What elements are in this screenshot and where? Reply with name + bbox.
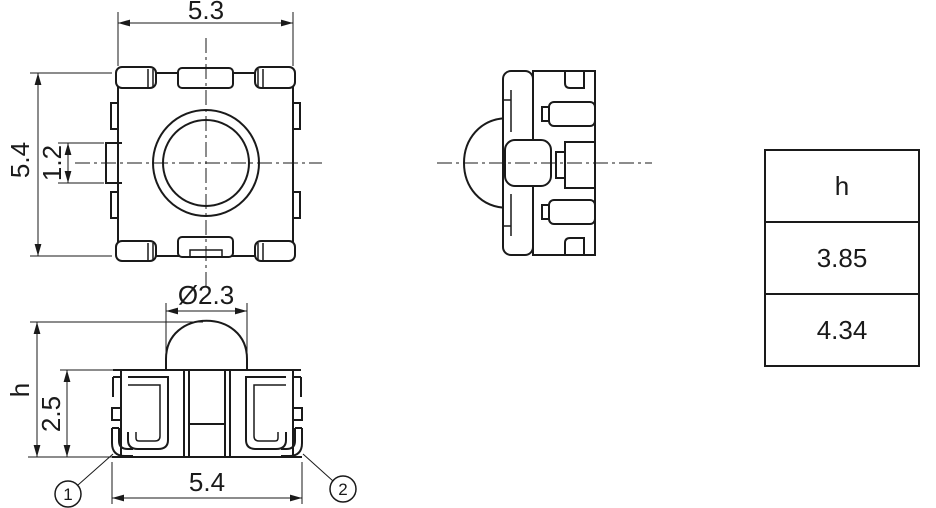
drawing-sheet: 5.3 5.4 1.2	[0, 0, 936, 508]
terminal-tab	[549, 102, 595, 126]
terminal-tab-step	[542, 107, 549, 121]
skirt-strip	[293, 377, 301, 397]
dim-top-width-label: 5.3	[188, 0, 224, 25]
table-header-cell: h	[766, 151, 918, 221]
skirt-strip	[113, 377, 121, 397]
dim-dome-diameter-label: Ø2.3	[178, 280, 234, 310]
dim-total-height-label: h	[5, 383, 35, 397]
callout-label-1: 1	[63, 485, 72, 504]
terminal-clip-inner	[254, 385, 286, 441]
front-body-sides	[121, 370, 293, 457]
side-bump	[111, 103, 118, 129]
side-bump	[111, 192, 118, 218]
terminal-clip	[246, 377, 286, 449]
dim-base-width-label: 5.4	[189, 467, 225, 497]
side-tab	[112, 408, 121, 420]
dim-body-height-label: 2.5	[36, 396, 66, 432]
terminal-clip-inner	[128, 385, 160, 441]
corner-piece	[116, 241, 156, 261]
corner-piece	[116, 67, 156, 88]
table-cell: 3.85	[766, 221, 918, 293]
corner-piece	[255, 241, 295, 261]
front-dome	[166, 321, 247, 370]
dim-top-height-label: 5.4	[5, 142, 35, 178]
corner-hook-right	[281, 428, 302, 456]
callout-leader	[303, 454, 333, 481]
callout-label-2: 2	[338, 480, 347, 499]
extension-lines	[166, 303, 247, 366]
top-view: 5.3 5.4 1.2	[5, 0, 322, 288]
side-bump	[293, 192, 300, 218]
callout-leader	[78, 454, 113, 485]
terminal-tab-step	[542, 205, 549, 219]
terminal-tab	[549, 200, 595, 224]
dim-stem-label: 1.2	[37, 145, 67, 181]
front-view: Ø2.3 h 2.5 5.4 1 2	[5, 280, 356, 507]
center-post	[184, 370, 230, 457]
side-tab	[293, 408, 302, 420]
center-tab-step	[556, 152, 565, 178]
side-view	[437, 71, 652, 255]
side-bump	[293, 103, 300, 129]
corner-piece	[255, 67, 295, 88]
table-cell: 4.34	[766, 293, 918, 365]
terminal-clip	[128, 377, 168, 449]
corner-hook-left	[112, 428, 133, 456]
height-spec-table: h 3.85 4.34	[764, 149, 920, 367]
center-tab	[565, 142, 595, 188]
